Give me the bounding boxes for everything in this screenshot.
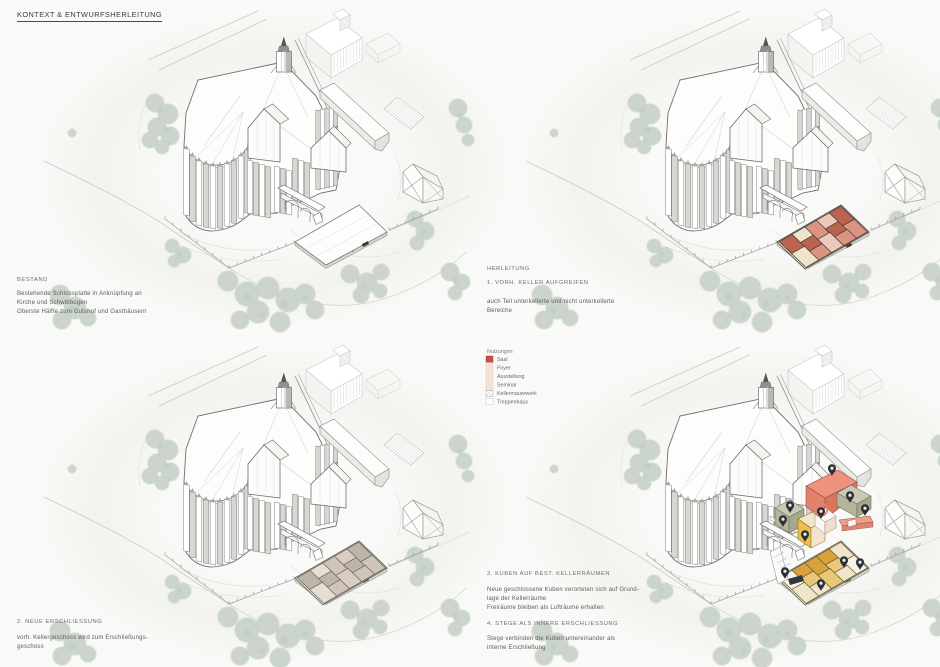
svg-text:Seminar: Seminar [497, 383, 517, 389]
svg-text:Ausstellung: Ausstellung [497, 374, 524, 380]
svg-text:Nutzungen: Nutzungen [487, 349, 513, 355]
svg-text:Kellermauerwerk: Kellermauerwerk [497, 391, 537, 397]
svg-text:Foyer: Foyer [497, 366, 511, 372]
svg-text:Treppenhaus: Treppenhaus [497, 400, 528, 406]
svg-text:Saal: Saal [497, 357, 508, 363]
